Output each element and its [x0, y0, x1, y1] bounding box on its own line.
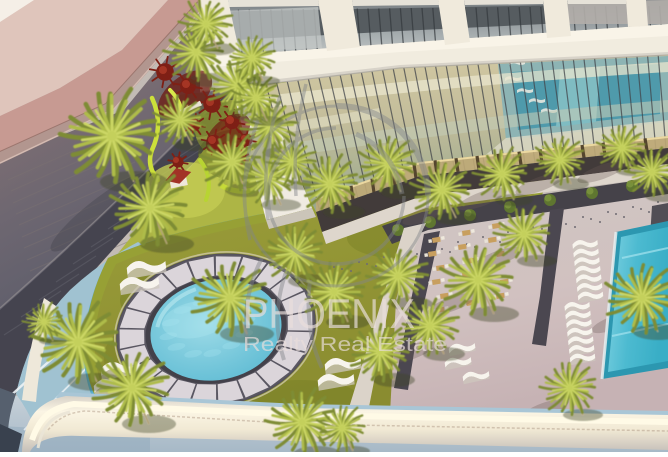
svg-text:Realty Real Estate: Realty Real Estate	[243, 334, 447, 356]
svg-text:PHOENIX: PHOENIX	[243, 290, 415, 337]
